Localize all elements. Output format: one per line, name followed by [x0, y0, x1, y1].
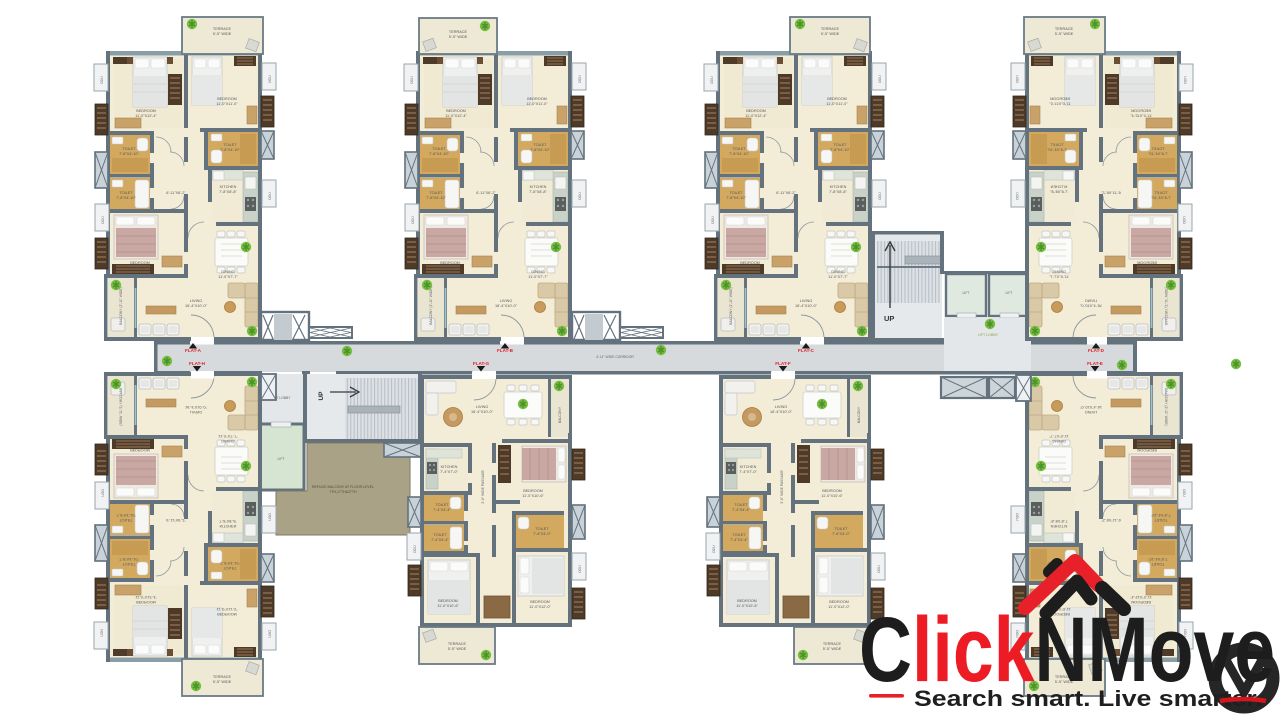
svg-text:REFUGE BALCONY AT FLOOR LEVEL: REFUGE BALCONY AT FLOOR LEVEL — [312, 485, 374, 489]
svg-text:5'-5" WIDE: 5'-5" WIDE — [448, 647, 467, 651]
svg-text:4'-11" WIDE CORRIDOR: 4'-11" WIDE CORRIDOR — [596, 355, 634, 359]
svg-text:FLAT-E: FLAT-E — [1087, 361, 1103, 366]
svg-text:5'-5" WIDE: 5'-5" WIDE — [1055, 32, 1074, 36]
svg-text:LIFT: LIFT — [963, 291, 970, 295]
svg-text:5'-5" WIDE: 5'-5" WIDE — [213, 32, 232, 36]
svg-text:TERRACE: TERRACE — [821, 27, 840, 31]
svg-text:ClickNMove: ClickNMove — [859, 598, 1275, 701]
svg-text:5'-5" WIDE: 5'-5" WIDE — [449, 35, 468, 39]
svg-text:TERRACE: TERRACE — [823, 642, 842, 646]
svg-text:FLAT-C: FLAT-C — [798, 348, 815, 353]
svg-text:Search smart. Live smarter.: Search smart. Live smarter. — [914, 687, 1263, 711]
svg-text:UP: UP — [884, 314, 894, 323]
svg-text:5'-5" WIDE: 5'-5" WIDE — [823, 647, 842, 651]
svg-text:LIFT: LIFT — [1006, 291, 1013, 295]
svg-text:UP: UP — [318, 391, 325, 401]
svg-text:7TH,17TH&27TH: 7TH,17TH&27TH — [329, 490, 357, 494]
svg-text:5'-5" WIDE: 5'-5" WIDE — [821, 32, 840, 36]
svg-text:FLAT-B: FLAT-B — [497, 348, 514, 353]
svg-text:5'-5" WIDE: 5'-5" WIDE — [213, 680, 232, 684]
svg-text:FLAT-D: FLAT-D — [1088, 348, 1105, 353]
svg-text:FLAT-H: FLAT-H — [189, 361, 206, 366]
svg-text:LIFT: LIFT — [278, 457, 285, 461]
svg-text:LIFT LOBBY: LIFT LOBBY — [978, 333, 999, 337]
svg-text:TERRACE: TERRACE — [213, 675, 232, 679]
svg-text:FLAT-G: FLAT-G — [473, 361, 490, 366]
svg-text:FLAT-F: FLAT-F — [775, 361, 791, 366]
svg-text:FLAT-A: FLAT-A — [185, 348, 202, 353]
svg-text:TERRACE: TERRACE — [449, 30, 468, 34]
svg-text:TERRACE: TERRACE — [1055, 27, 1074, 31]
svg-text:TERRACE: TERRACE — [213, 27, 232, 31]
svg-text:TERRACE: TERRACE — [448, 642, 467, 646]
